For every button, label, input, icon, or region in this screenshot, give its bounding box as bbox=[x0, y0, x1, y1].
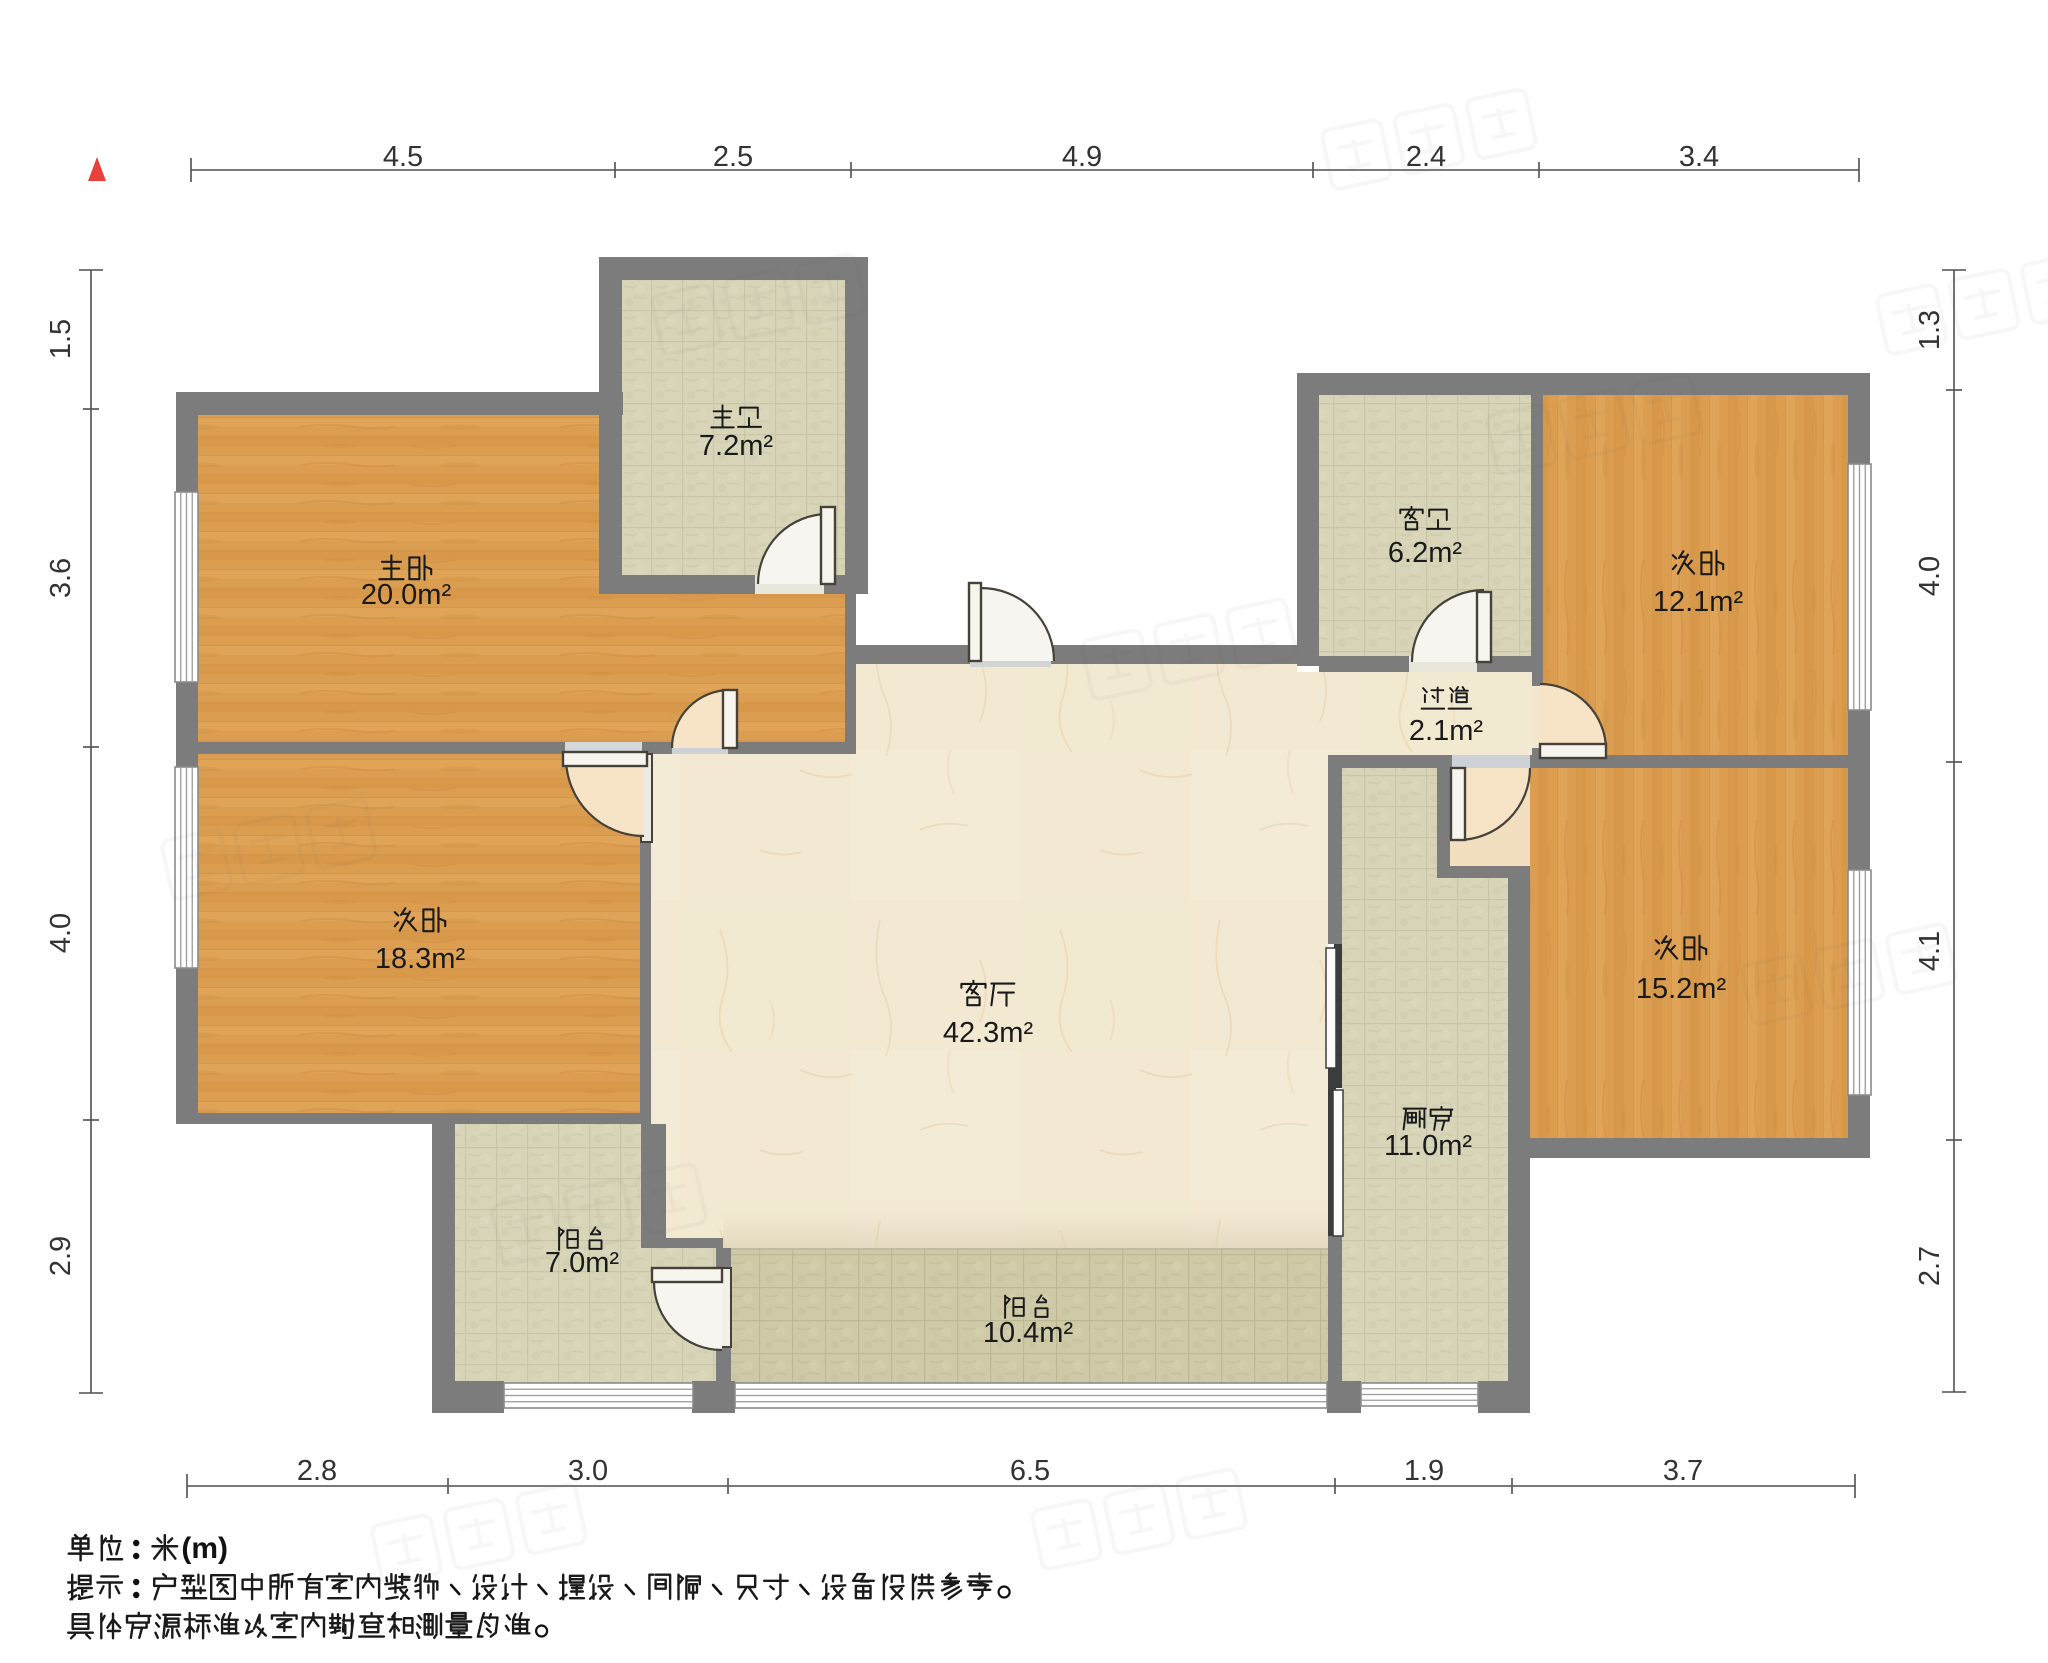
svg-text:7.2m²: 7.2m² bbox=[699, 430, 773, 462]
svg-text:1.5: 1.5 bbox=[45, 319, 77, 359]
svg-text:1.9: 1.9 bbox=[1404, 1455, 1444, 1487]
svg-text:12.1m²: 12.1m² bbox=[1653, 586, 1744, 618]
svg-text:11.0m²: 11.0m² bbox=[1384, 1130, 1472, 1162]
svg-text:20.0m²: 20.0m² bbox=[361, 579, 452, 611]
svg-text:4.9: 4.9 bbox=[1062, 141, 1102, 173]
svg-text:2.9: 2.9 bbox=[45, 1236, 77, 1276]
svg-text:3.6: 3.6 bbox=[45, 558, 77, 598]
svg-text:4.5: 4.5 bbox=[383, 141, 423, 173]
svg-text:2.1m²: 2.1m² bbox=[1409, 715, 1483, 747]
svg-text:2.7: 2.7 bbox=[1914, 1246, 1946, 1286]
svg-text:4.0: 4.0 bbox=[1914, 556, 1946, 596]
svg-text:6.2m²: 6.2m² bbox=[1388, 537, 1462, 569]
svg-text:18.3m²: 18.3m² bbox=[375, 943, 466, 975]
svg-text:15.2m²: 15.2m² bbox=[1636, 973, 1727, 1005]
svg-text:3.0: 3.0 bbox=[568, 1455, 608, 1487]
svg-text:2.8: 2.8 bbox=[297, 1455, 337, 1487]
svg-text:3.7: 3.7 bbox=[1663, 1455, 1703, 1487]
svg-text:6.5: 6.5 bbox=[1010, 1455, 1050, 1487]
svg-text:4.0: 4.0 bbox=[45, 913, 77, 953]
svg-text:42.3m²: 42.3m² bbox=[943, 1017, 1034, 1049]
svg-text:(m): (m) bbox=[181, 1532, 228, 1565]
svg-text:2.5: 2.5 bbox=[713, 141, 753, 173]
svg-text:3.4: 3.4 bbox=[1679, 141, 1719, 173]
svg-text:10.4m²: 10.4m² bbox=[983, 1317, 1074, 1349]
